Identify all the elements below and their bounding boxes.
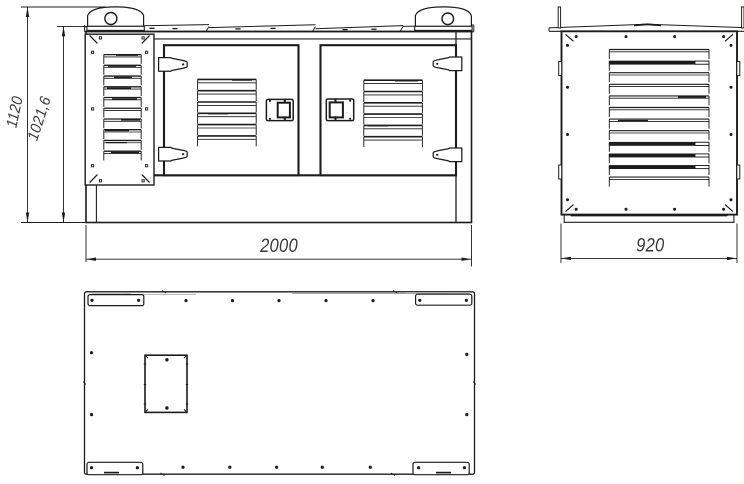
svg-text:2000: 2000 [259,235,298,257]
svg-text:920: 920 [636,234,664,256]
